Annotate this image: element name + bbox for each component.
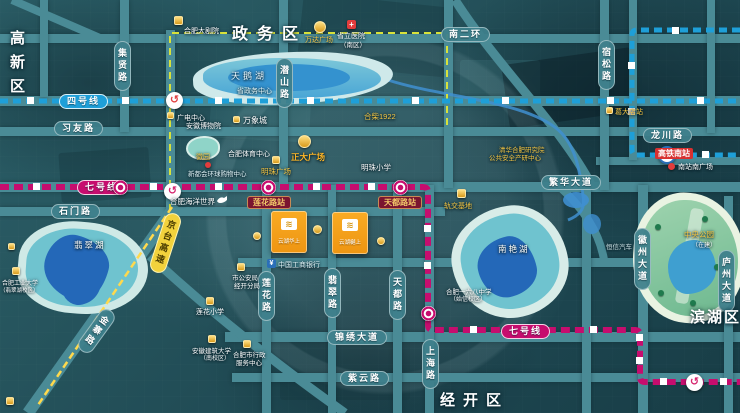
station-label-tiandu: 天都路站 — [378, 196, 422, 209]
poi-hospital-line2: （南区） — [340, 39, 366, 49]
lianhua-road-station-dot — [261, 180, 276, 195]
district-gaoxin: 高新区 — [6, 30, 27, 102]
road-label-longchuan: 龙川路 — [643, 128, 692, 143]
road-label-shanghai: 上海路 — [422, 339, 439, 389]
project-parcel-a: ≋ 云湖华上 — [271, 211, 307, 253]
road-band — [225, 332, 740, 342]
line7-badge-2: 七号线 — [501, 324, 550, 339]
line7-terminus-loop-icon: ↺ — [686, 374, 703, 391]
road-band — [600, 0, 609, 190]
parcel-logo: ≋ — [281, 218, 297, 230]
poi-museum: 安徽博物院 — [186, 121, 221, 131]
bank-icon: ¥ — [267, 259, 276, 268]
line7-station-dot — [421, 306, 436, 321]
poi-south-square: 南站南广场 — [678, 162, 713, 172]
district-zhengwu: 政务区 — [232, 20, 307, 44]
district-jingkai: 经开区 — [440, 389, 509, 410]
poi-ocean-world: 合肥海洋世界 — [170, 196, 215, 207]
poi-wanda: 万达广场 — [305, 35, 333, 45]
admin-center-icon — [243, 340, 251, 348]
poi-icon — [253, 232, 261, 240]
road-label-lianhua: 莲花路 — [258, 271, 275, 321]
road-label-feicui: 翡翠路 — [324, 268, 341, 318]
road-label-luzhou: 庐州大道 — [718, 250, 735, 312]
poi-rail-base: 轨交基地 — [444, 201, 472, 211]
parcel-b-name: 云湖樾上 — [334, 238, 366, 246]
line4-loop-icon: ↺ — [166, 92, 183, 109]
theatre-icon — [174, 16, 183, 25]
hsr-south-station-tag: 高铁南站 — [655, 148, 693, 159]
radio-tv-icon — [167, 112, 174, 119]
poi-icon — [313, 225, 322, 234]
road-label-shimen: 石门路 — [51, 204, 100, 219]
road-label-jixian: 集贤路 — [114, 41, 131, 91]
mingzhu-plaza-icon — [272, 156, 280, 164]
tiandu-road-station-dot — [393, 180, 408, 195]
road-band — [707, 0, 715, 133]
poi-gedadian-station: 葛大店站 — [615, 107, 643, 117]
poi-theatre: 合肥大剧院 — [184, 26, 219, 36]
poi-huiyuan: 徽园 — [196, 152, 210, 162]
lake-label-tianehu: 天鹅湖 — [231, 69, 267, 82]
line7-station-dot — [113, 180, 128, 195]
lake-label-feicuihu: 翡翠湖 — [74, 239, 106, 251]
poi-lianhua-school: 莲花小学 — [196, 307, 224, 317]
road-label-nanerhuan: 南二环 — [441, 27, 490, 42]
texture-patch — [280, 340, 410, 400]
tree-icon — [655, 224, 661, 230]
wanda-plaza-icon — [314, 21, 326, 33]
poi-zhengda: 正大广场 — [291, 151, 325, 163]
poi-tsinghua-line2: 公共安全产研中心 — [489, 152, 541, 162]
zhengda-plaza-icon — [298, 135, 311, 148]
poi-icon — [377, 237, 385, 245]
poi-mingzhu-school: 明珠小学 — [361, 162, 391, 173]
road-band — [40, 0, 48, 97]
road-band — [629, 0, 637, 160]
police-icon — [237, 263, 245, 271]
poi-icon — [8, 243, 15, 250]
rail-base-icon — [457, 189, 466, 198]
gedadian-station-icon — [606, 107, 613, 114]
whale-icon — [216, 195, 231, 204]
road-label-jinxiu: 锦绣大道 — [327, 330, 387, 345]
road-label-huizhou: 徽州大道 — [634, 228, 651, 290]
poi-bank: 中国工商银行 — [278, 260, 320, 270]
road-label-fanhua: 繁华大道 — [541, 175, 601, 190]
road-label-qianshan: 潜山路 — [276, 58, 293, 108]
station-label-lianhua: 莲花路站 — [247, 196, 291, 209]
promotional-satellite-map: 四号线 七号线 七号线 ↺ ↺ ↺ 工 高新区 政务区 滨湖区 经开区 集贤路 … — [0, 0, 740, 413]
poi-hechai-1922: 合柴1922 — [364, 111, 396, 122]
poi-univ-line2: （南校区） — [200, 353, 230, 362]
poi-sports-center: 合肥体育中心 — [228, 149, 270, 159]
hfut-icon — [12, 267, 20, 275]
parcel-a-name: 云湖华上 — [273, 237, 305, 245]
line4-badge: 四号线 — [59, 94, 108, 109]
road-label-tiandu: 天都路 — [389, 270, 406, 320]
tree-icon — [702, 216, 708, 222]
poi-police-line2: 经开分局 — [234, 280, 260, 290]
poi-xinduhui: 新都会环球购物中心 — [188, 168, 247, 178]
lake-label-nanyanhu: 南艳湖 — [498, 243, 530, 255]
poi-gov-center: 省政务中心 — [237, 86, 272, 96]
road-label-xiyou: 习友路 — [54, 121, 103, 136]
parcel-logo: ≋ — [342, 219, 358, 231]
south-square-pin-icon — [668, 163, 675, 170]
lianhua-school-icon — [206, 297, 214, 305]
university-icon — [208, 335, 216, 343]
small-red-poi-icon — [205, 162, 211, 168]
district-binhu: 滨湖区 — [690, 306, 740, 327]
poi-school168-line2: （始信校区） — [450, 294, 486, 303]
road-band — [582, 185, 591, 413]
project-parcel-b: ≋ 云湖樾上 — [332, 212, 368, 254]
road-label-susong: 宿松路 — [598, 40, 615, 90]
poi-hfut-line2: （翡翠湖校区） — [0, 286, 39, 294]
road-band — [232, 373, 740, 382]
hospital-cross-icon: + — [347, 20, 356, 29]
tree-icon — [658, 290, 664, 296]
poi-admin-line2: 服务中心 — [236, 357, 262, 367]
poi-auto: 恒信汽车 — [606, 241, 632, 251]
road-label-ziyun: 紫云路 — [340, 371, 389, 386]
park-label-central: 中央公园 — [684, 229, 714, 240]
poi-icon — [6, 397, 14, 405]
mixc-icon — [233, 116, 240, 123]
park-status: （在建） — [692, 240, 716, 249]
poi-mingzhu-plaza: 明珠广场 — [261, 166, 291, 177]
poi-mixc: 万象城 — [243, 115, 267, 126]
